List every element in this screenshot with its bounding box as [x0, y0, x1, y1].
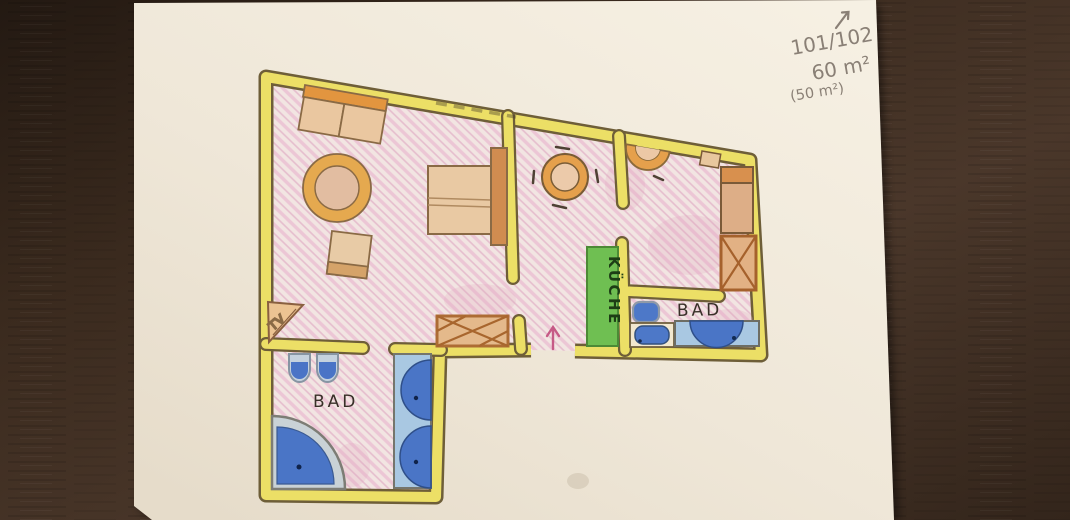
- toilet: [633, 302, 659, 322]
- paper-smudge: [567, 473, 589, 489]
- armchair-seat: [315, 166, 359, 210]
- wall-hung-basin-1: [289, 354, 310, 382]
- crossed-luggage-rack: [721, 236, 756, 290]
- round-dining-table: [542, 154, 588, 200]
- photo-floor-plan-on-table: TV: [0, 0, 1070, 520]
- double-basin-unit: [394, 354, 431, 488]
- wall-shelf: [700, 151, 721, 168]
- bathtub-drain: [732, 336, 736, 340]
- sofa-seat-right: [339, 104, 386, 144]
- bed-headboard: [491, 148, 507, 245]
- lattice-bench: [437, 316, 508, 346]
- bathroom-right-label: BAD: [677, 300, 723, 321]
- stool: [327, 231, 372, 279]
- sink-counter: [630, 323, 674, 347]
- round-armchair: [303, 154, 371, 222]
- wardrobe: [721, 167, 753, 233]
- floor-plan-scene: TV: [0, 0, 1070, 520]
- bathtub: [675, 321, 759, 348]
- sofa-seat-left: [298, 97, 344, 136]
- wall-hung-basin-2: [317, 354, 338, 382]
- kitchen-label: KÜCHE: [605, 256, 624, 326]
- sink-drain: [638, 339, 642, 343]
- shower-drain: [297, 465, 302, 470]
- bathroom-left-label: BAD: [313, 392, 358, 412]
- kitchen: KÜCHE: [587, 247, 624, 346]
